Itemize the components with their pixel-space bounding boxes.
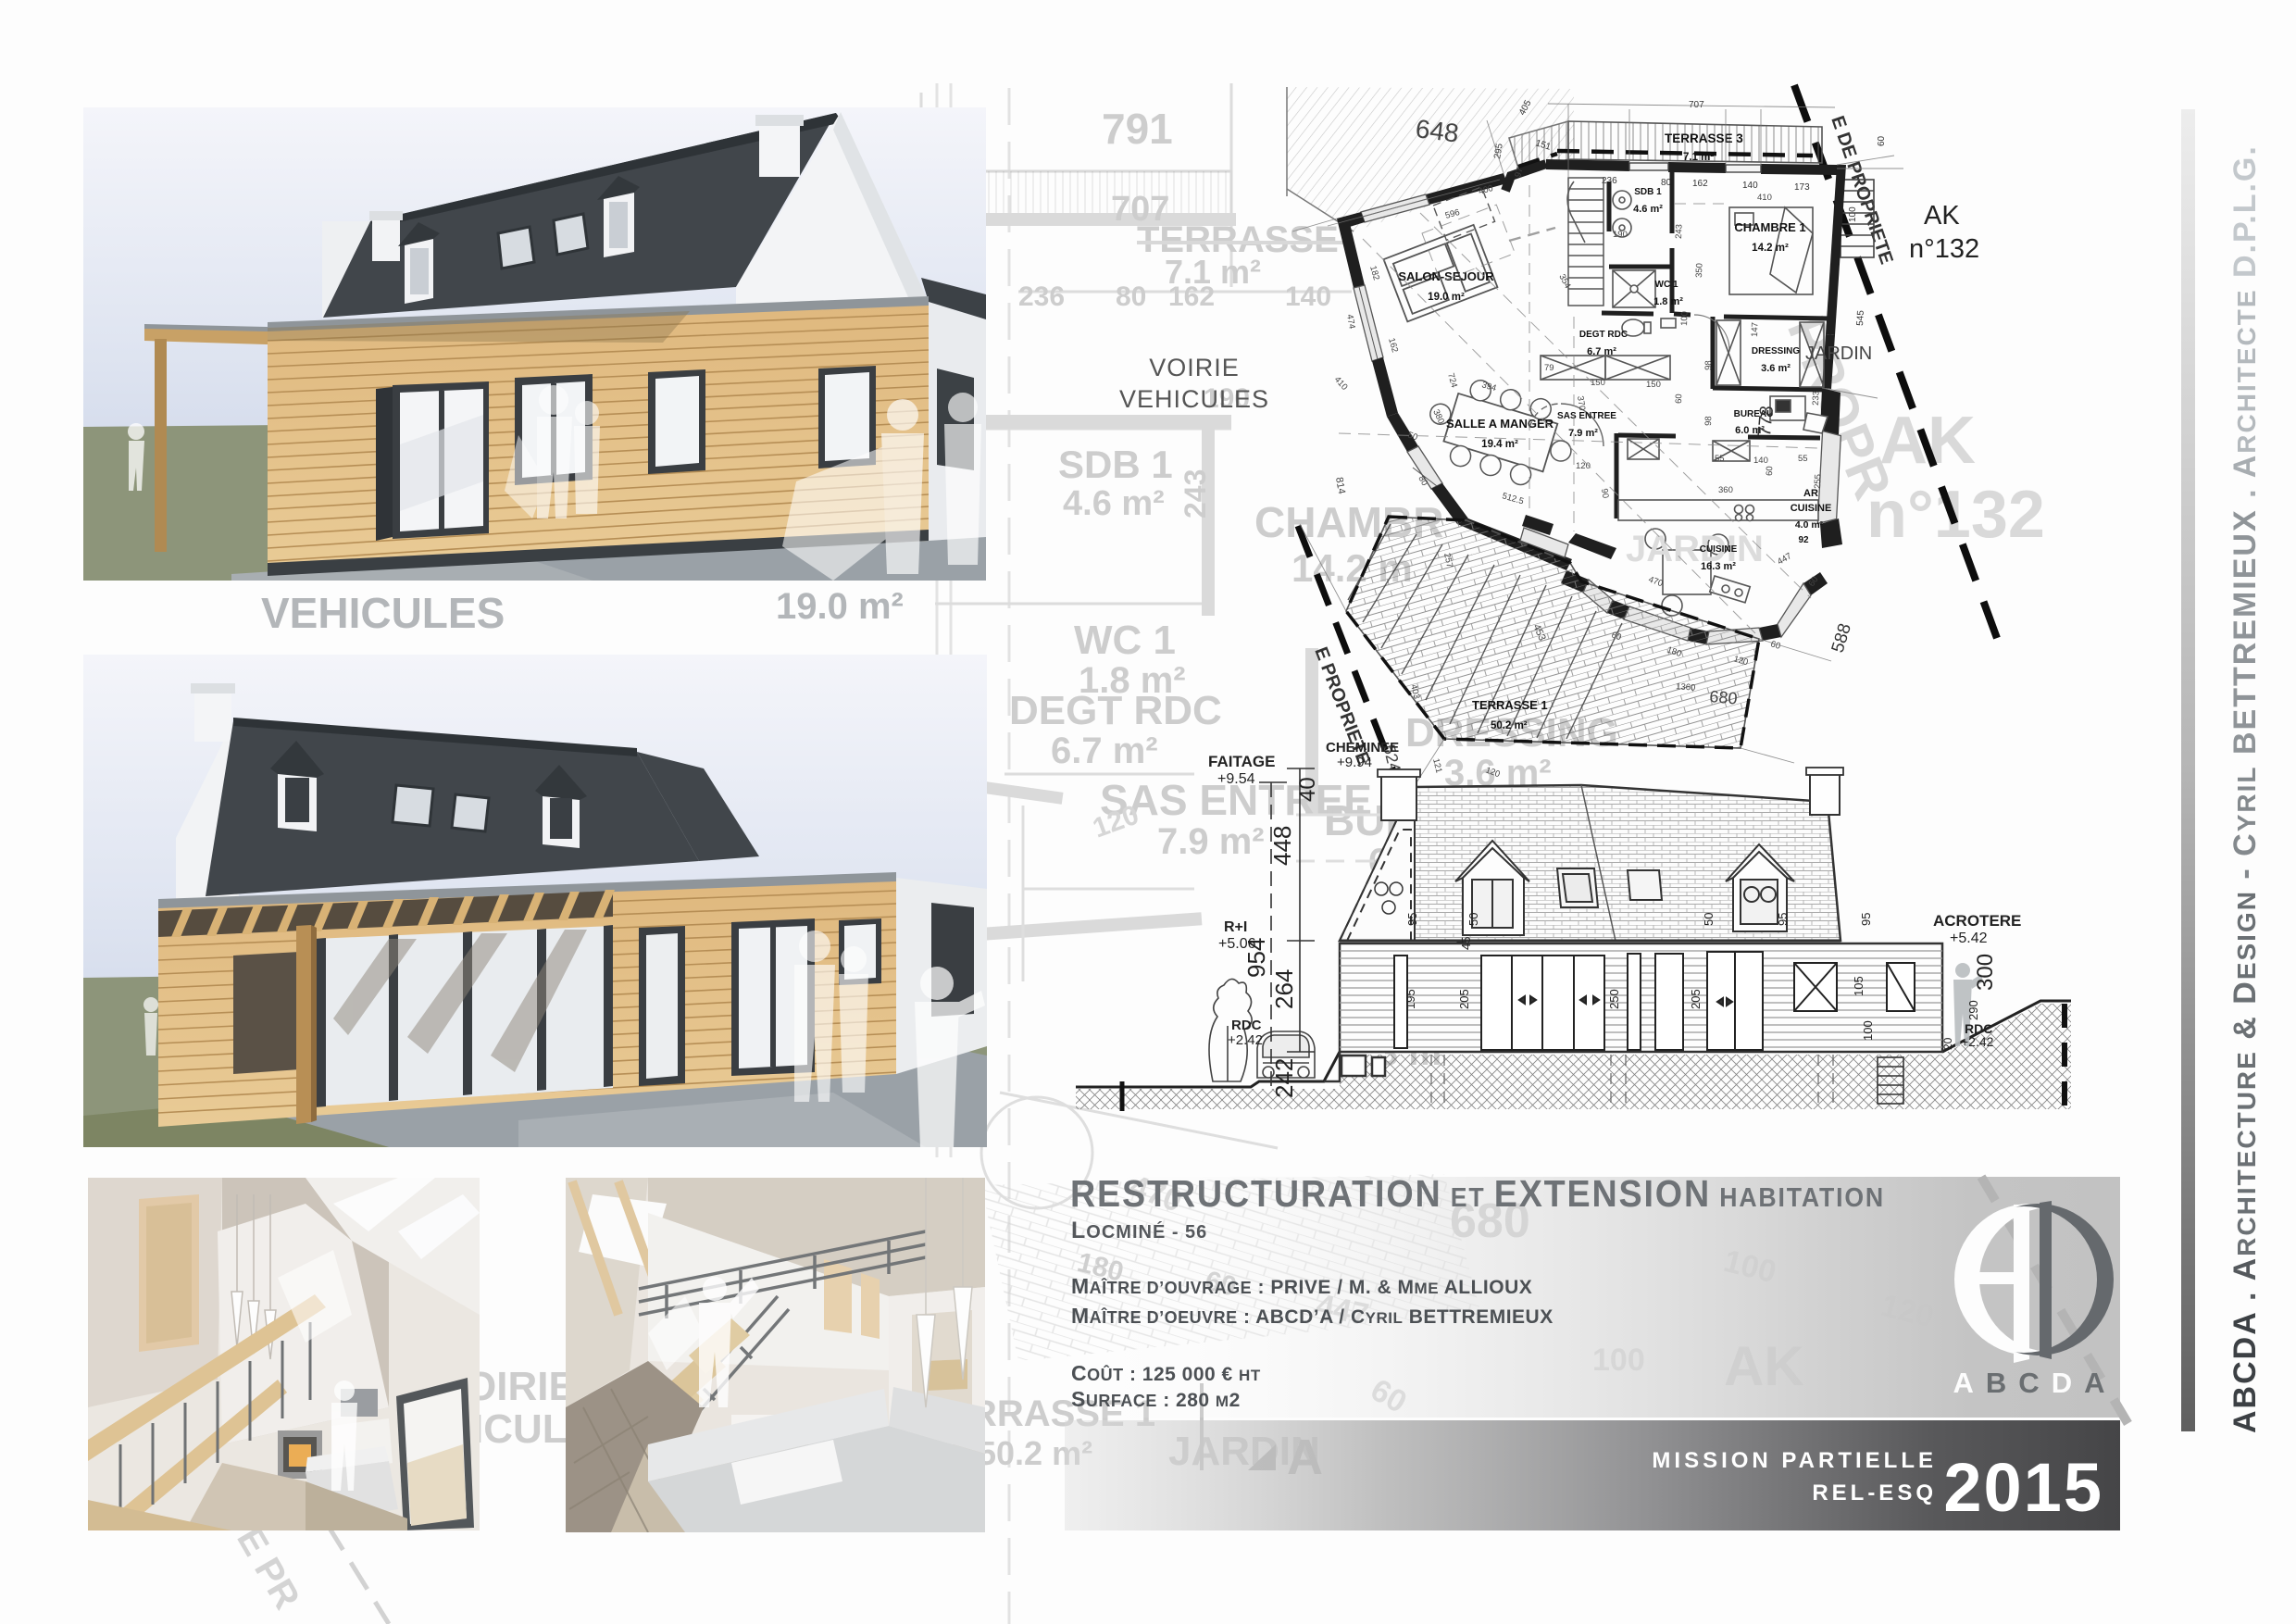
svg-text:162: 162 (1692, 179, 1708, 189)
svg-text:140: 140 (1285, 281, 1331, 312)
svg-text:545: 545 (1855, 309, 1866, 326)
svg-text:REL-ESQ: REL-ESQ (1812, 1480, 1937, 1505)
svg-text:+2.42: +2.42 (1961, 1034, 1994, 1049)
svg-text:VEHICULES: VEHICULES (1119, 385, 1269, 413)
svg-text:TERRASSE 3: TERRASSE 3 (1665, 131, 1743, 145)
svg-text:DEGT RDC: DEGT RDC (1579, 330, 1628, 340)
svg-text:ACROTERE: ACROTERE (1933, 912, 2021, 930)
svg-text:648: 648 (1414, 114, 1460, 147)
svg-text:ABCDA: ABCDA (1953, 1367, 2117, 1399)
svg-text:RDC: RDC (1231, 1018, 1262, 1033)
svg-text:100: 100 (1679, 311, 1691, 326)
svg-text:236: 236 (1018, 281, 1065, 312)
svg-text:DEGT RDC: DEGT RDC (1009, 688, 1222, 733)
svg-text:205: 205 (1457, 989, 1471, 1009)
svg-text:+5.42: +5.42 (1950, 931, 1988, 946)
svg-text:55: 55 (1798, 454, 1808, 464)
svg-text:680: 680 (1709, 687, 1739, 708)
svg-text:55: 55 (1715, 454, 1725, 464)
svg-text:707: 707 (1689, 100, 1704, 110)
svg-text:16.3 m²: 16.3 m² (1701, 561, 1736, 572)
svg-text:100: 100 (1848, 206, 1858, 222)
svg-text:300: 300 (1973, 954, 1998, 991)
svg-text:290: 290 (1966, 1000, 1980, 1020)
svg-text:OIRIE: OIRIE (465, 1364, 576, 1409)
svg-text:+9.54: +9.54 (1217, 771, 1255, 787)
svg-text:45: 45 (1459, 937, 1473, 950)
svg-text:370: 370 (1575, 395, 1587, 411)
svg-text:250: 250 (1607, 989, 1621, 1009)
svg-text:JARDIN: JARDIN (1626, 529, 1764, 569)
svg-text:n°132: n°132 (1909, 234, 1979, 264)
svg-text:105: 105 (1852, 976, 1865, 996)
svg-text:264: 264 (1270, 969, 1298, 1009)
svg-text:4.6 m²: 4.6 m² (1063, 484, 1165, 523)
svg-text:98: 98 (1703, 416, 1714, 426)
svg-text:14.2 m²: 14.2 m² (1752, 243, 1789, 254)
svg-text:TERRASSE 1: TERRASSE 1 (1472, 698, 1548, 712)
svg-text:50: 50 (1466, 913, 1480, 926)
svg-text:162: 162 (1168, 281, 1215, 312)
svg-text:95: 95 (1859, 913, 1873, 926)
svg-text:243: 243 (1179, 469, 1212, 518)
svg-text:20: 20 (1941, 1037, 1954, 1050)
svg-text:100: 100 (1861, 1020, 1875, 1041)
svg-text:R+I: R+I (1224, 919, 1247, 935)
svg-text:147: 147 (1750, 322, 1761, 337)
svg-text:150: 150 (1646, 380, 1661, 390)
svg-text:4.6 m²: 4.6 m² (1633, 204, 1663, 215)
svg-text:SAS ENTREE: SAS ENTREE (1557, 411, 1616, 421)
svg-text:243: 243 (1674, 224, 1685, 239)
svg-text:140: 140 (1753, 456, 1768, 466)
svg-text:MISSION PARTIELLE: MISSION PARTIELLE (1652, 1448, 1937, 1473)
svg-text:WC 1: WC 1 (1074, 618, 1176, 663)
svg-text:7.1 m²: 7.1 m² (1683, 152, 1714, 163)
svg-text:1360: 1360 (1676, 681, 1696, 693)
svg-text:242: 242 (1270, 1058, 1298, 1098)
svg-text:19.4 m²: 19.4 m² (1481, 439, 1518, 450)
svg-text:LOCMINÉ - 56: LOCMINÉ - 56 (1071, 1218, 1207, 1243)
svg-text:954: 954 (1242, 938, 1270, 978)
svg-text:7.9 m²: 7.9 m² (1568, 428, 1598, 439)
svg-text:SDB 1: SDB 1 (1058, 443, 1173, 486)
svg-text:98: 98 (1703, 360, 1714, 370)
svg-text:60: 60 (1877, 135, 1887, 146)
svg-text:3.6 m²: 3.6 m² (1761, 363, 1791, 374)
svg-text:60: 60 (1765, 466, 1775, 476)
svg-text:233: 233 (1811, 391, 1822, 406)
svg-text:90: 90 (1599, 488, 1610, 499)
svg-text:WC 1: WC 1 (1655, 280, 1678, 290)
svg-text:AK: AK (1924, 201, 1960, 231)
svg-text:ABCDA . ARCHITECTURE & DESIGN: ABCDA . ARCHITECTURE & DESIGN - CYRIL BE… (2227, 144, 2263, 1433)
svg-text:6.7 m²: 6.7 m² (1587, 346, 1616, 357)
svg-text:50: 50 (1702, 913, 1716, 926)
svg-text:350: 350 (1694, 263, 1705, 278)
svg-text:4.0 m²: 4.0 m² (1795, 519, 1824, 531)
svg-text:6.7 m²: 6.7 m² (1051, 731, 1158, 771)
svg-text:SDB 1: SDB 1 (1634, 187, 1662, 197)
svg-text:60: 60 (1674, 394, 1684, 404)
svg-text:1.8 m²: 1.8 m² (1653, 296, 1683, 307)
svg-text:VEHICULES: VEHICULES (261, 589, 505, 637)
svg-text:173: 173 (1794, 182, 1810, 193)
svg-text:80: 80 (1116, 281, 1146, 312)
svg-text:JARDIN: JARDIN (1805, 344, 1872, 364)
svg-text:DRESSING: DRESSING (1752, 346, 1800, 356)
svg-text:n°132: n°132 (1866, 478, 2045, 552)
svg-text:791: 791 (1102, 105, 1173, 153)
svg-text:19.0 m²: 19.0 m² (776, 586, 904, 627)
svg-text:FAITAGE: FAITAGE (1208, 753, 1275, 770)
svg-text:95: 95 (1776, 913, 1790, 926)
svg-text:+9.94: +9.94 (1337, 755, 1372, 770)
svg-text:79: 79 (1544, 363, 1554, 373)
svg-text:7.9 m²: 7.9 m² (1157, 821, 1265, 862)
svg-text:2015: 2015 (1943, 1449, 2103, 1526)
svg-text:VOIRIE: VOIRIE (1149, 354, 1240, 381)
svg-text:205: 205 (1689, 989, 1703, 1009)
svg-text:778: 778 (1754, 405, 1778, 437)
svg-text:40: 40 (1295, 777, 1320, 802)
svg-text:SALLE A MANGER: SALLE A MANGER (1446, 417, 1554, 431)
svg-text:95: 95 (1405, 913, 1419, 926)
svg-text:92: 92 (1798, 535, 1809, 545)
svg-text:410: 410 (1757, 193, 1772, 203)
svg-text:120: 120 (1576, 461, 1591, 471)
svg-text:140: 140 (1742, 181, 1758, 191)
svg-text:CUISINE: CUISINE (1700, 544, 1738, 555)
svg-text:360: 360 (1718, 485, 1733, 495)
svg-text:448: 448 (1268, 826, 1296, 866)
svg-text:255: 255 (1813, 474, 1824, 489)
svg-text:+2.42: +2.42 (1228, 1032, 1263, 1048)
svg-text:CHAMBRE 1: CHAMBRE 1 (1734, 220, 1805, 234)
svg-text:50.2 m²: 50.2 m² (1491, 720, 1528, 731)
svg-text:CHEMINEE: CHEMINEE (1326, 740, 1399, 756)
svg-text:CUISINE: CUISINE (1791, 503, 1832, 514)
svg-text:19.0 m²: 19.0 m² (1428, 292, 1465, 303)
svg-text:195: 195 (1404, 989, 1417, 1009)
svg-text:190: 190 (1613, 230, 1628, 240)
